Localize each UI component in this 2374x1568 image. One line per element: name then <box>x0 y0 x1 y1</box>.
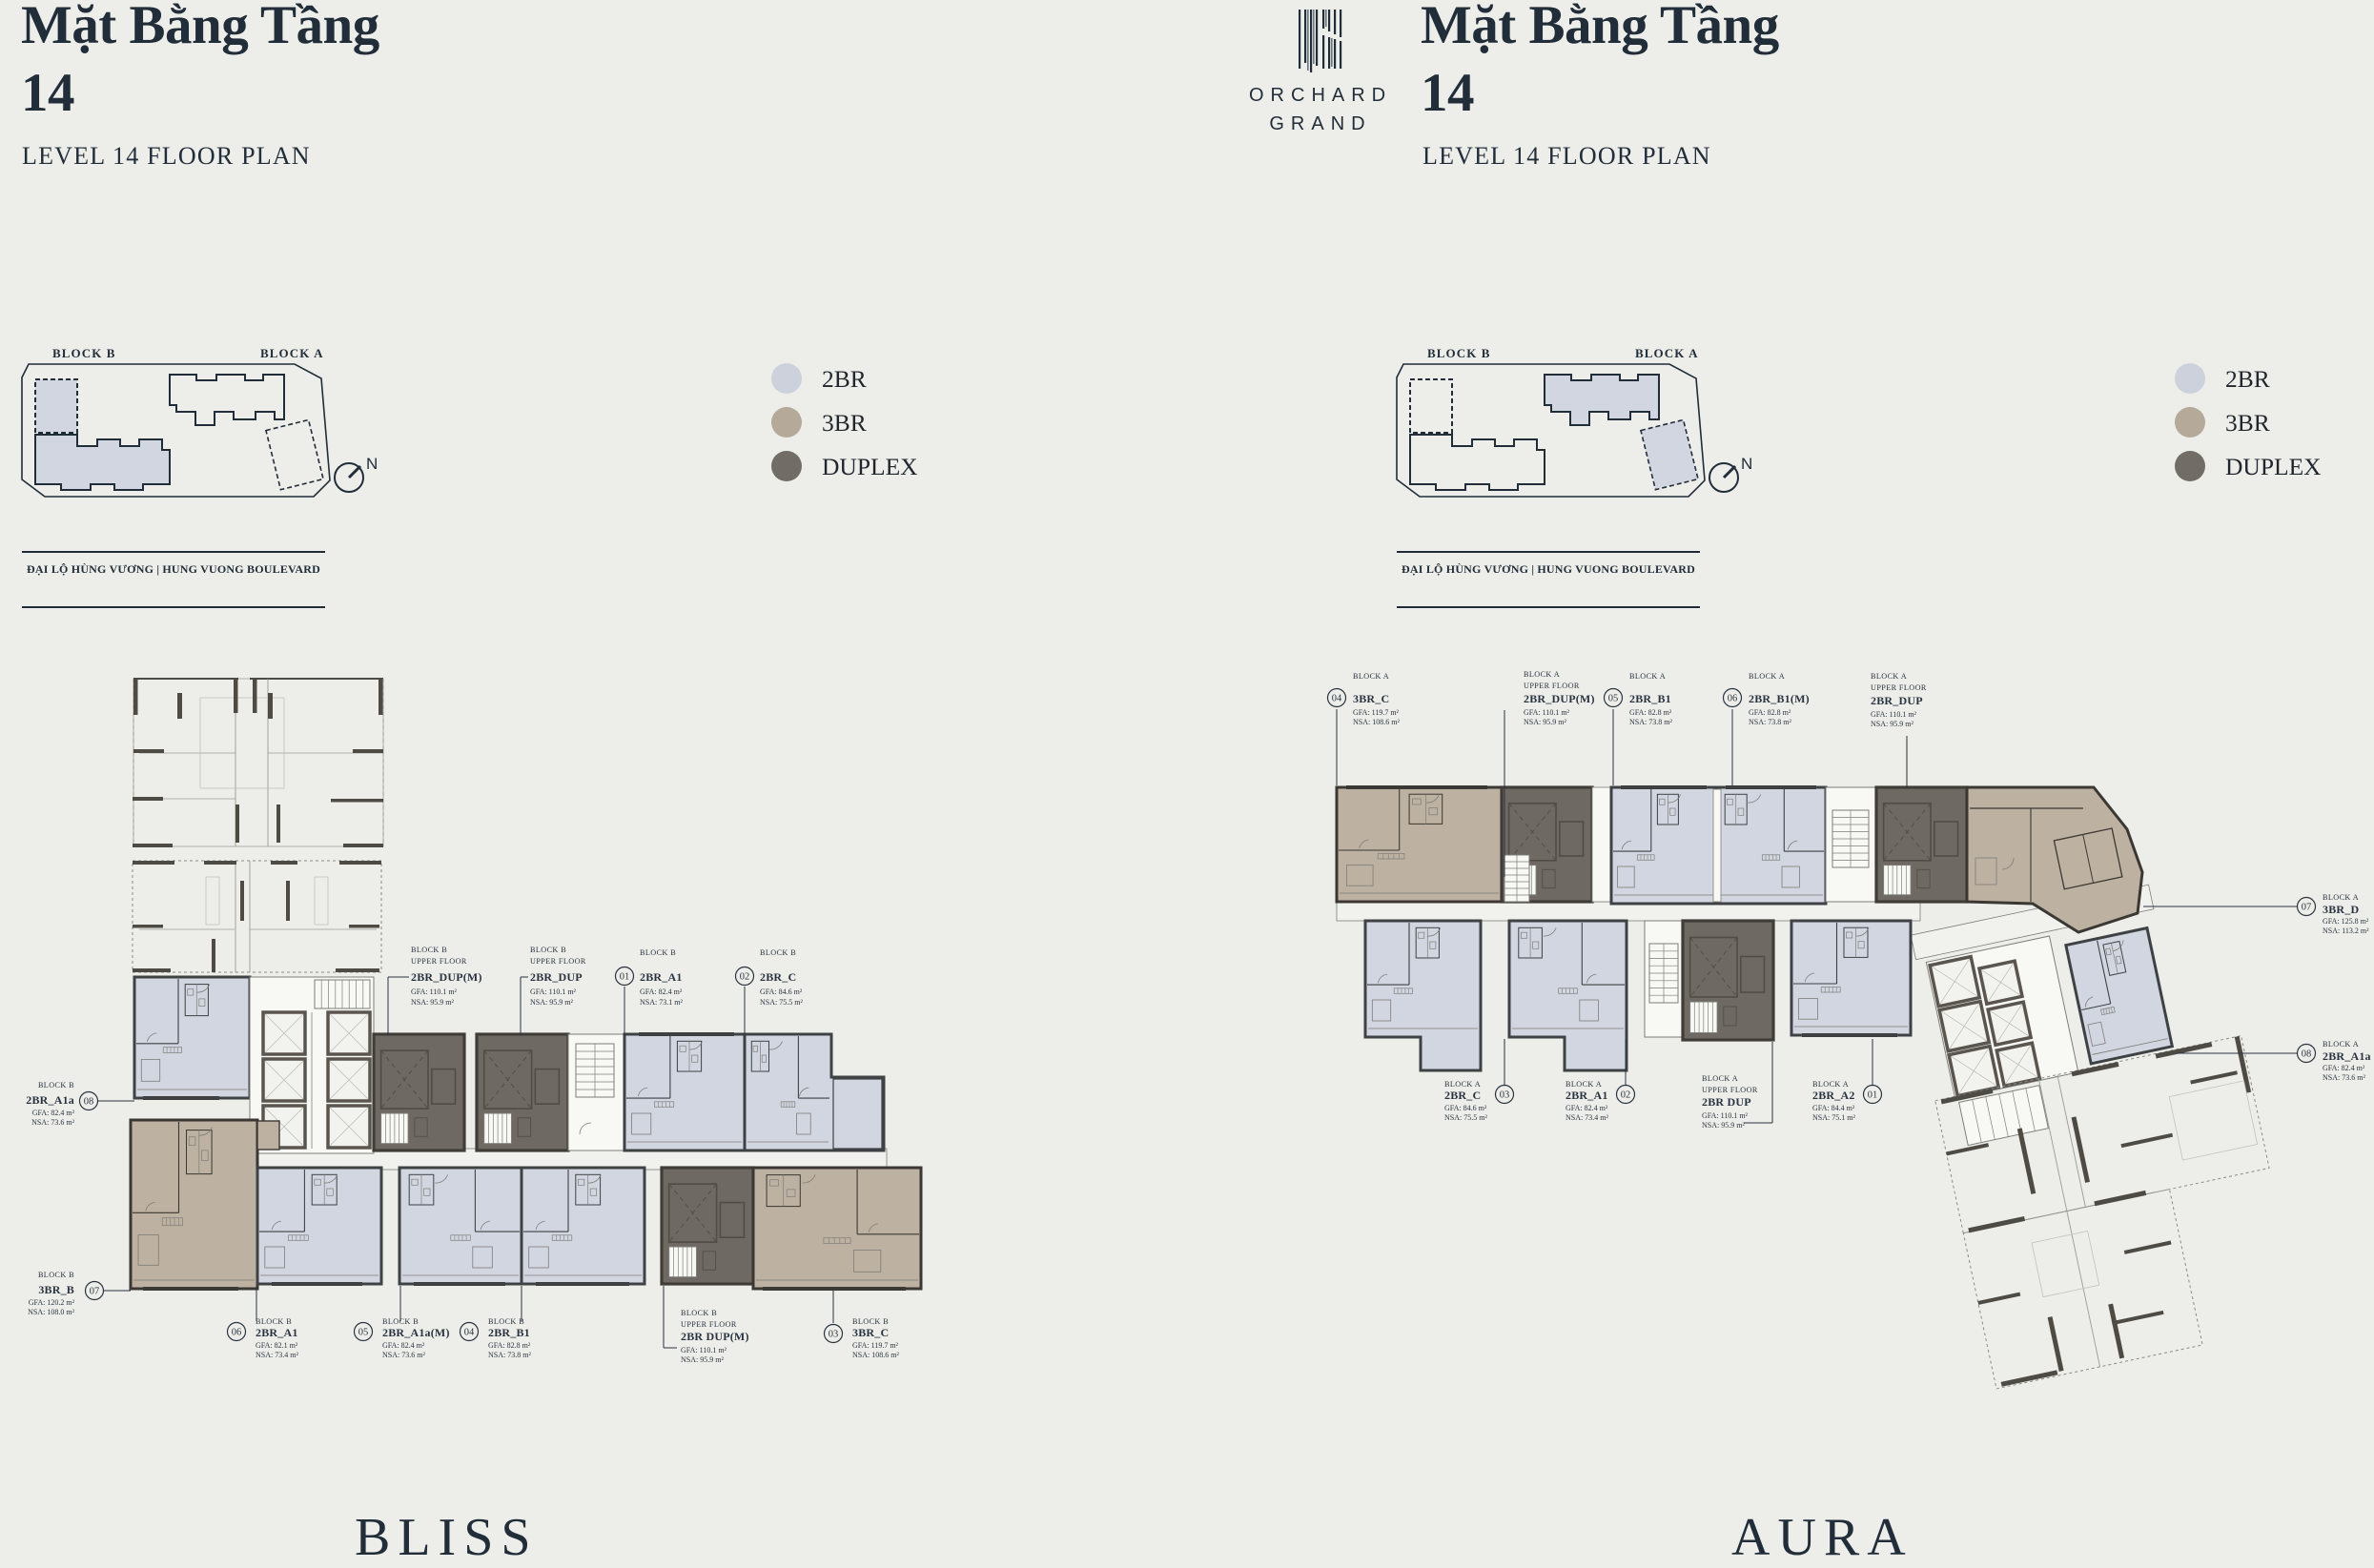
svg-text:GFA: 82.8 m²: GFA: 82.8 m² <box>1629 708 1672 717</box>
svg-text:2BR DUP(M): 2BR DUP(M) <box>681 1330 749 1343</box>
svg-text:GFA: 82.8 m²: GFA: 82.8 m² <box>488 1341 531 1350</box>
svg-text:GFA: 110.1 m²: GFA: 110.1 m² <box>411 988 458 996</box>
svg-text:GFA: 84.4 m²: GFA: 84.4 m² <box>1812 1104 1855 1112</box>
svg-text:2BR_A2: 2BR_A2 <box>1812 1089 1855 1102</box>
svg-text:BLOCK A: BLOCK A <box>1702 1074 1738 1083</box>
svg-text:02: 02 <box>1621 1090 1631 1101</box>
svg-text:GFA: 82.8 m²: GFA: 82.8 m² <box>1749 708 1791 717</box>
svg-text:NSA: 95.9 m²: NSA: 95.9 m² <box>411 998 454 1007</box>
svg-text:BLOCK A: BLOCK A <box>1353 672 1389 681</box>
svg-text:2BR_A1a(M): 2BR_A1a(M) <box>382 1326 450 1339</box>
svg-text:GFA: 82.4 m²: GFA: 82.4 m² <box>1566 1104 1608 1112</box>
svg-text:NSA: 108.6 m²: NSA: 108.6 m² <box>1353 718 1400 726</box>
svg-text:GFA: 110.1 m²: GFA: 110.1 m² <box>1702 1111 1749 1120</box>
svg-text:NSA: 73.6 m²: NSA: 73.6 m² <box>2323 1073 2365 1082</box>
svg-text:BLOCK B: BLOCK B <box>38 1081 74 1089</box>
svg-text:NSA: 73.8 m²: NSA: 73.8 m² <box>1629 718 1672 726</box>
svg-text:GFA: 82.4 m²: GFA: 82.4 m² <box>640 988 683 996</box>
svg-text:BLOCK B: BLOCK B <box>411 946 447 954</box>
svg-text:BLOCK B: BLOCK B <box>256 1317 292 1326</box>
svg-text:01: 01 <box>1868 1090 1878 1101</box>
svg-text:NSA: 73.4 m²: NSA: 73.4 m² <box>1566 1113 1608 1122</box>
svg-text:2BR_B1: 2BR_B1 <box>488 1326 530 1339</box>
svg-text:BLOCK A: BLOCK A <box>1812 1080 1849 1089</box>
svg-text:2BR_C: 2BR_C <box>760 970 796 984</box>
svg-text:GFA: 110.1 m²: GFA: 110.1 m² <box>1524 708 1570 717</box>
svg-text:NSA: 75.1 m²: NSA: 75.1 m² <box>1812 1113 1855 1122</box>
svg-text:BLOCK A: BLOCK A <box>1566 1080 1602 1089</box>
svg-text:2BR_A1: 2BR_A1 <box>1566 1089 1608 1102</box>
svg-text:UPPER FLOOR: UPPER FLOOR <box>1871 683 1927 692</box>
svg-text:GFA: 110.1 m²: GFA: 110.1 m² <box>530 988 577 996</box>
svg-text:NSA: 73.4 m²: NSA: 73.4 m² <box>256 1351 298 1359</box>
svg-text:05: 05 <box>358 1328 369 1338</box>
svg-text:2BR_A1a: 2BR_A1a <box>26 1093 74 1107</box>
svg-text:2BR_B1(M): 2BR_B1(M) <box>1749 692 1810 705</box>
svg-text:UPPER FLOOR: UPPER FLOOR <box>681 1320 737 1329</box>
svg-text:BLOCK B: BLOCK B <box>760 948 796 957</box>
svg-text:01: 01 <box>620 972 630 983</box>
svg-text:2BR_A1: 2BR_A1 <box>256 1326 298 1339</box>
svg-text:07: 07 <box>90 1287 100 1297</box>
svg-text:NSA: 113.2 m²: NSA: 113.2 m² <box>2323 927 2369 935</box>
svg-text:GFA: 84.6 m²: GFA: 84.6 m² <box>760 988 803 996</box>
svg-text:2BR_DUP: 2BR_DUP <box>1871 694 1923 707</box>
svg-text:2BR_A1: 2BR_A1 <box>640 970 683 984</box>
svg-text:BLOCK B: BLOCK B <box>852 1317 889 1326</box>
svg-text:2BR_DUP(M): 2BR_DUP(M) <box>411 970 482 984</box>
svg-text:NSA: 108.6 m²: NSA: 108.6 m² <box>852 1351 899 1359</box>
svg-text:GFA: 125.8 m²: GFA: 125.8 m² <box>2323 917 2369 926</box>
svg-text:NSA: 73.1 m²: NSA: 73.1 m² <box>640 998 683 1007</box>
svg-text:08: 08 <box>2302 1049 2312 1060</box>
svg-text:BLOCK A: BLOCK A <box>1749 672 1785 681</box>
svg-text:04: 04 <box>1332 694 1342 704</box>
svg-text:2BR_B1: 2BR_B1 <box>1629 692 1671 705</box>
svg-text:BLOCK A: BLOCK A <box>2323 1040 2359 1049</box>
svg-text:BLOCK A: BLOCK A <box>1524 670 1560 679</box>
svg-text:GFA: 110.1 m²: GFA: 110.1 m² <box>681 1346 727 1354</box>
svg-text:NSA: 75.5 m²: NSA: 75.5 m² <box>760 998 803 1007</box>
svg-text:N: N <box>1741 455 1752 473</box>
svg-text:2BR_C: 2BR_C <box>1444 1089 1481 1102</box>
svg-text:GFA: 82.4 m²: GFA: 82.4 m² <box>2323 1064 2365 1072</box>
svg-text:GFA: 119.7 m²: GFA: 119.7 m² <box>852 1341 899 1350</box>
svg-text:2BR_DUP: 2BR_DUP <box>530 970 583 984</box>
svg-text:06: 06 <box>232 1328 242 1338</box>
svg-text:BLOCK B: BLOCK B <box>530 946 566 954</box>
svg-text:2BR DUP: 2BR DUP <box>1702 1095 1751 1109</box>
svg-text:04: 04 <box>464 1328 475 1338</box>
svg-text:BLOCK B: BLOCK B <box>640 948 676 957</box>
svg-text:NSA: 73.6 m²: NSA: 73.6 m² <box>31 1118 74 1127</box>
svg-text:2BR_DUP(M): 2BR_DUP(M) <box>1524 692 1595 705</box>
svg-text:GFA: 120.2 m²: GFA: 120.2 m² <box>29 1298 75 1307</box>
svg-text:08: 08 <box>84 1097 94 1108</box>
svg-text:2BR_A1a: 2BR_A1a <box>2323 1049 2371 1063</box>
svg-text:GFA: 110.1 m²: GFA: 110.1 m² <box>1871 710 1917 719</box>
svg-text:NSA: 73.6 m²: NSA: 73.6 m² <box>382 1351 425 1359</box>
svg-text:GFA: 119.7 m²: GFA: 119.7 m² <box>1353 708 1400 717</box>
svg-text:3BR_C: 3BR_C <box>1353 692 1389 705</box>
svg-text:NSA: 95.9 m²: NSA: 95.9 m² <box>1871 720 1914 728</box>
svg-text:3BR_B: 3BR_B <box>38 1283 74 1296</box>
svg-text:07: 07 <box>2302 903 2312 913</box>
svg-text:BLOCK A: BLOCK A <box>1444 1080 1481 1089</box>
svg-text:BLOCK A: BLOCK A <box>1629 672 1666 681</box>
svg-text:GFA: 82.4 m²: GFA: 82.4 m² <box>382 1341 425 1350</box>
svg-text:05: 05 <box>1608 694 1619 704</box>
svg-text:UPPER FLOOR: UPPER FLOOR <box>1702 1086 1758 1094</box>
svg-text:UPPER FLOOR: UPPER FLOOR <box>1524 682 1580 690</box>
svg-text:02: 02 <box>740 972 750 983</box>
svg-text:03: 03 <box>829 1330 839 1340</box>
svg-text:3BR_D: 3BR_D <box>2323 903 2359 916</box>
svg-text:GFA: 84.6 m²: GFA: 84.6 m² <box>1444 1104 1487 1112</box>
svg-text:06: 06 <box>1728 694 1738 704</box>
svg-text:NSA: 108.0 m²: NSA: 108.0 m² <box>28 1308 74 1316</box>
svg-text:NSA: 95.9 m²: NSA: 95.9 m² <box>1524 718 1566 726</box>
svg-text:NSA: 95.9 m²: NSA: 95.9 m² <box>1702 1121 1745 1130</box>
svg-text:03: 03 <box>1500 1090 1510 1101</box>
svg-text:NSA: 95.9 m²: NSA: 95.9 m² <box>681 1355 724 1364</box>
svg-text:BLOCK A: BLOCK A <box>2323 893 2359 902</box>
svg-text:NSA: 73.8 m²: NSA: 73.8 m² <box>1749 718 1791 726</box>
svg-text:GFA: 82.4 m²: GFA: 82.4 m² <box>32 1109 75 1117</box>
svg-text:BLOCK B: BLOCK B <box>488 1317 524 1326</box>
svg-text:3BR_C: 3BR_C <box>852 1326 889 1339</box>
svg-text:NSA: 73.8 m²: NSA: 73.8 m² <box>488 1351 531 1359</box>
svg-text:GFA: 82.1 m²: GFA: 82.1 m² <box>256 1341 298 1350</box>
svg-text:NSA: 95.9 m²: NSA: 95.9 m² <box>530 998 573 1007</box>
svg-text:BLOCK B: BLOCK B <box>382 1317 419 1326</box>
svg-text:NSA: 75.5 m²: NSA: 75.5 m² <box>1444 1113 1487 1122</box>
svg-text:UPPER FLOOR: UPPER FLOOR <box>411 957 467 966</box>
svg-text:BLOCK B: BLOCK B <box>681 1309 717 1317</box>
svg-text:BLOCK B: BLOCK B <box>38 1271 74 1279</box>
svg-text:BLOCK A: BLOCK A <box>1871 672 1907 681</box>
svg-text:UPPER FLOOR: UPPER FLOOR <box>530 957 586 966</box>
